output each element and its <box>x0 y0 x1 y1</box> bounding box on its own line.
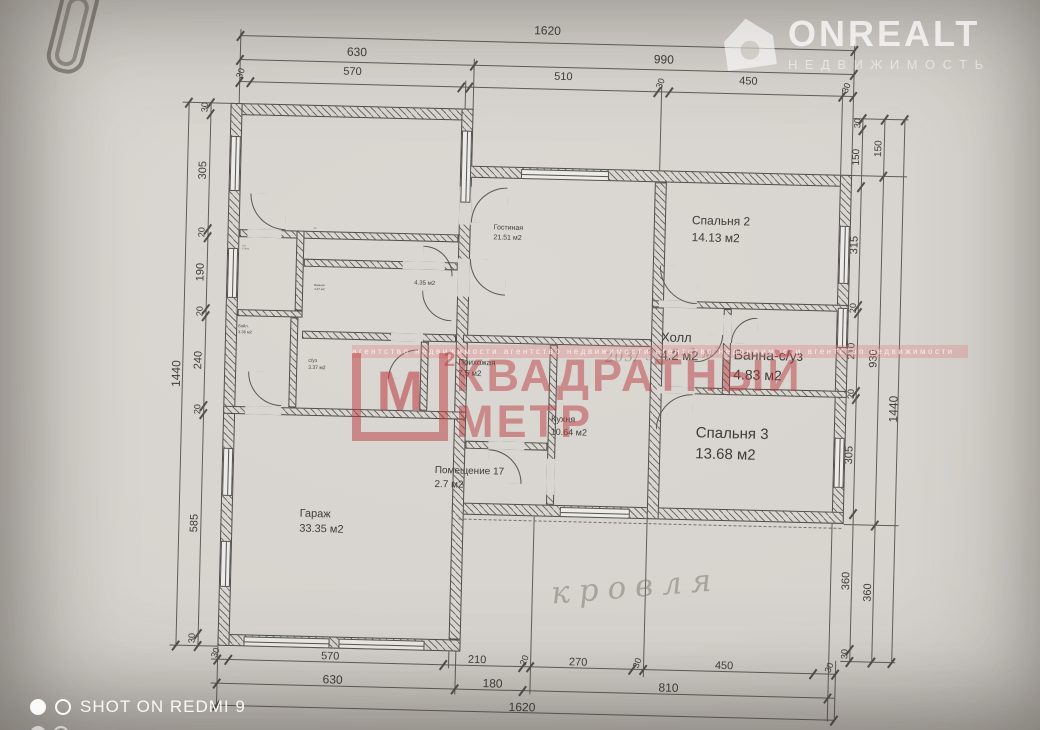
room-label: с/уз2.76 м2 <box>242 245 249 251</box>
dimension-label: 630 <box>347 45 367 59</box>
dimension-line <box>840 90 843 175</box>
onrealt-watermark: ONREALT НЕДВИЖИМОСТЬ <box>720 14 991 72</box>
dimension-label: 30 <box>209 646 222 659</box>
room-label: 4.35 м2 <box>414 279 435 288</box>
camera-lens-icon <box>30 699 46 715</box>
camera-watermark-label: SHOT ON REDMI 9 <box>80 697 246 717</box>
dimension-label: 1440 <box>886 396 901 423</box>
dimension-label: 30 <box>852 118 862 128</box>
room-area: 4.35 м2 <box>414 279 435 288</box>
agency-logo-m2-icon: М 2 <box>352 353 448 441</box>
room-area: 14.13 м2 <box>691 229 750 247</box>
door-opening <box>245 406 281 415</box>
dimension-label: 270 <box>569 656 588 668</box>
dimension-label: 990 <box>654 52 674 66</box>
window <box>220 541 231 587</box>
room-label: Бойл.3.36 м2 <box>238 323 252 335</box>
dimension-label: 510 <box>554 71 573 83</box>
dimension-label: 360 <box>840 572 852 591</box>
dimension-label: 585 <box>188 514 200 533</box>
agency-logo-letter: М <box>361 353 439 429</box>
room-label: Гостиная21.51 м2 <box>493 223 523 243</box>
wall <box>288 317 298 407</box>
room-area: 21.51 м2 <box>493 233 523 244</box>
dimension-label: 1620 <box>508 700 535 715</box>
window <box>230 136 241 191</box>
room-area: 13.68 м2 <box>695 443 768 466</box>
camera-lens-outline-icon-partial <box>53 726 69 730</box>
dimension-label: 30 <box>654 77 667 90</box>
dimension-line <box>871 119 885 662</box>
onrealt-subtitle: НЕДВИЖИМОСТЬ <box>788 57 991 72</box>
dimension-label: 20 <box>196 227 206 237</box>
dimension-label: 305 <box>843 446 855 465</box>
room-name: Гараж <box>299 507 344 523</box>
dimension-label: 30 <box>186 633 196 643</box>
door-arc <box>423 246 454 277</box>
dimension-label: 150 <box>873 140 884 157</box>
room-label: Помещение 172.7 м2 <box>434 464 504 494</box>
dimension-label: 30 <box>199 102 209 112</box>
onrealt-house-icon <box>716 10 782 76</box>
window <box>521 169 609 181</box>
door-arc <box>421 291 452 322</box>
room-label: шкаф2.02 м2 <box>314 228 318 231</box>
wall <box>302 331 456 343</box>
dimension-label: 240 <box>192 351 204 370</box>
dimension-label: 190 <box>194 263 206 282</box>
camera-lens-icon-partial <box>30 726 46 730</box>
room-area: 2.7 м2 <box>434 478 504 494</box>
wall <box>237 309 302 318</box>
dimension-label: 20 <box>194 306 204 316</box>
door-opening <box>247 229 281 238</box>
dimension-line <box>659 85 662 170</box>
dimension-label: 315 <box>848 236 860 255</box>
dimension-label: 30 <box>234 67 247 80</box>
dimension-label: 360 <box>862 583 874 602</box>
dimension-label: 20 <box>518 654 531 667</box>
door-arc <box>247 371 282 406</box>
room-area: 4.27 м2 <box>314 287 325 291</box>
dimension-label: 630 <box>322 672 342 686</box>
dimension-line <box>239 29 242 103</box>
dimension-label: 180 <box>482 676 502 690</box>
door-arc <box>469 259 506 296</box>
door-arc <box>250 193 287 230</box>
window <box>227 248 238 298</box>
camera-lens-outline-icon <box>55 699 71 715</box>
room-label: Спальня 214.13 м2 <box>691 212 750 247</box>
window <box>243 636 329 648</box>
dimension-label: 20 <box>192 404 202 414</box>
wall <box>652 182 667 307</box>
dimension-label: 1620 <box>534 23 561 38</box>
dimension-label: 20 <box>846 389 856 399</box>
dimension-label: 450 <box>715 660 734 672</box>
photo-background: 1620630990305705103045030305702102027030… <box>0 0 1040 730</box>
window <box>338 639 424 651</box>
dimension-line <box>448 651 449 668</box>
dimension-label: 1440 <box>169 360 184 387</box>
dimension-line <box>197 102 211 645</box>
agency-watermark-line2: МЕТР <box>456 396 593 448</box>
agency-watermark-line1: КВАДРАТНЫЙ <box>456 350 803 402</box>
window <box>460 131 472 203</box>
camera-watermark: SHOT ON REDMI 9 <box>30 697 246 717</box>
window <box>838 226 849 284</box>
wall <box>230 103 473 121</box>
dimension-label: 210 <box>468 654 487 666</box>
room-area: 2.02 м2 <box>314 229 318 230</box>
dimension-label: 570 <box>343 66 362 78</box>
door-arc <box>471 187 508 224</box>
room-label: Спальня 313.68 м2 <box>695 422 769 466</box>
room-label: с/уз3.37 м2 <box>308 358 326 372</box>
dimension-line <box>239 81 853 97</box>
agency-logo-superscript: 2 <box>444 349 455 372</box>
dimension-line <box>465 81 467 109</box>
dimension-label: 305 <box>197 161 209 180</box>
onrealt-title: ONREALT <box>788 14 991 54</box>
door-arc <box>731 317 758 344</box>
window <box>560 507 630 519</box>
door-opening <box>457 258 470 296</box>
window <box>222 448 233 496</box>
door-arc <box>659 265 698 304</box>
dimension-line <box>891 119 905 662</box>
dimension-label: 20 <box>848 303 858 313</box>
dimension-label: 810 <box>658 680 678 694</box>
room-area: 3.37 м2 <box>308 365 326 372</box>
dimension-label: 150 <box>851 149 862 166</box>
room-name: Спальня 3 <box>696 422 769 445</box>
room-area: 3.36 м2 <box>238 329 252 335</box>
room-label: Гараж33.35 м2 <box>299 507 344 539</box>
door-opening <box>546 459 555 495</box>
wall <box>295 230 305 310</box>
room-name: Спальня 2 <box>692 212 751 230</box>
dimension-label: 450 <box>739 75 758 87</box>
dimension-label: 30 <box>839 649 849 659</box>
room-name: Гостиная <box>494 223 524 234</box>
dimension-label: 30 <box>823 661 836 674</box>
room-area: 33.35 м2 <box>299 522 344 538</box>
door-opening <box>391 333 423 342</box>
dimension-label: 570 <box>321 650 340 662</box>
room-area: 2.76 м2 <box>242 248 249 251</box>
room-label: Ванная4.27 м2 <box>314 283 325 292</box>
